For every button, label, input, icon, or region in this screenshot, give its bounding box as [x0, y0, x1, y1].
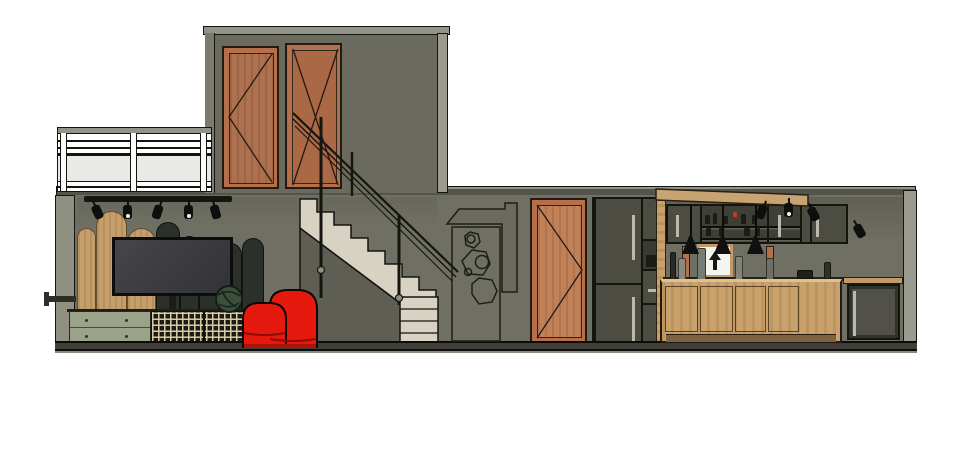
door-leaf [537, 205, 582, 338]
island-panel [700, 286, 733, 332]
shelf-bottle [744, 228, 750, 236]
drawer-knob [125, 335, 128, 338]
spot-stem [188, 200, 190, 206]
spotlight[interactable] [123, 205, 132, 219]
island-panel [665, 286, 698, 332]
wood-slat[interactable] [77, 228, 96, 311]
island-panel [768, 286, 799, 332]
counter-item [735, 256, 743, 280]
spotlight[interactable] [184, 205, 193, 219]
dishwasher[interactable] [847, 284, 900, 340]
right-wall-column [903, 190, 917, 343]
dishwasher-counter [843, 277, 903, 284]
glass-door-upper[interactable] [285, 43, 342, 189]
wall-bracket-end [44, 292, 49, 306]
dishwasher-handle[interactable] [853, 291, 856, 336]
spot-lens [126, 214, 130, 218]
up-arrow-stem [713, 259, 717, 270]
section-drawing-canvas[interactable] [0, 0, 965, 458]
railing-post [60, 133, 67, 191]
spot-stem [788, 198, 790, 204]
drawer[interactable] [70, 312, 150, 328]
rattan-door-divider [203, 312, 205, 344]
sideboard-green-drawers[interactable] [69, 311, 151, 345]
rattan-cabinet-doors[interactable] [151, 311, 254, 345]
wood-panel-door-hall[interactable] [530, 198, 587, 343]
glass-shelf [702, 238, 800, 240]
spot-lens [187, 214, 191, 218]
railing-post [200, 133, 207, 191]
shelf-bottle [705, 215, 710, 224]
upper-right-edge [437, 33, 448, 193]
track-light-bar [84, 196, 232, 202]
counter-item [678, 258, 686, 280]
counter-item [670, 252, 676, 280]
door-opening [292, 50, 337, 184]
wall-mounted-tv[interactable] [112, 237, 233, 296]
glass-shelf [702, 226, 800, 228]
spot-stem [127, 200, 129, 206]
glass-door-divider [767, 206, 769, 242]
upper-roof-slab [203, 26, 450, 35]
pendant-cord [722, 205, 724, 236]
shelf-bottle [713, 213, 717, 224]
shelf-bottle [733, 212, 737, 217]
pendant-cord [690, 205, 692, 236]
counter-item [797, 270, 813, 279]
shelf-bottle [756, 227, 760, 236]
wood-slat[interactable] [242, 238, 264, 311]
fridge-handle[interactable] [632, 215, 635, 260]
radio-button [284, 327, 289, 330]
vintage-radio[interactable] [262, 316, 301, 340]
radio-face [268, 322, 297, 335]
tv-stand [169, 296, 176, 310]
shelf-bottle [706, 228, 711, 236]
railing-post [130, 133, 137, 191]
shelf-bottle [741, 214, 746, 224]
kitchen-spotlight[interactable] [784, 203, 793, 217]
island-panel [735, 286, 766, 332]
fridge-tall-cabinet[interactable] [594, 197, 663, 343]
fridge-handle[interactable] [632, 297, 635, 341]
drawer-knob [85, 335, 88, 338]
counter-item [824, 262, 831, 279]
drawer-knob [125, 319, 128, 322]
radio-button [274, 327, 280, 330]
wood-panel-door-upper[interactable] [222, 46, 279, 189]
drawer-knob [85, 319, 88, 322]
cabinet-handle[interactable] [778, 215, 781, 237]
door-leaf [229, 53, 274, 184]
island-toe-kick [666, 334, 836, 342]
balcony-glass-railing[interactable] [57, 127, 212, 192]
cabinet-handle[interactable] [676, 215, 679, 237]
counter-item [766, 258, 774, 280]
spot-lens [787, 212, 791, 216]
fridge-door-split [596, 283, 641, 285]
